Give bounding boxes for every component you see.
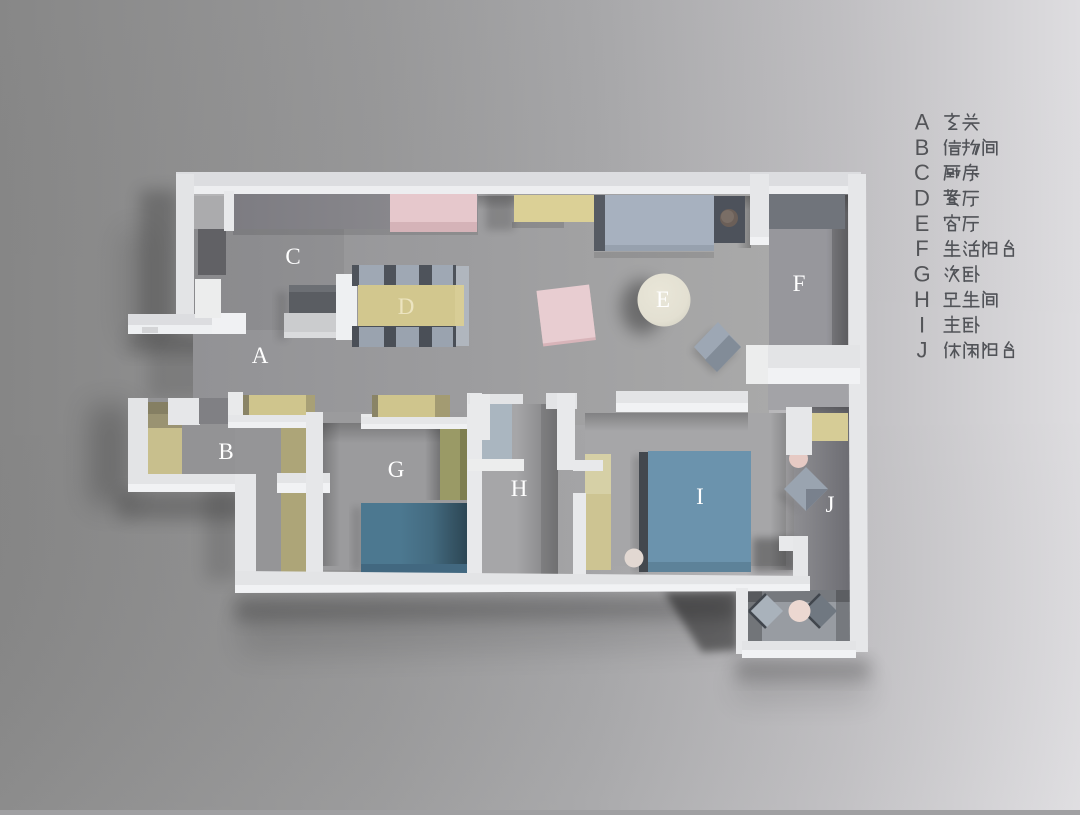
svg-text:J: J [826, 492, 835, 517]
svg-text:G: G [913, 262, 930, 287]
svg-text:B: B [915, 135, 930, 160]
svg-text:J: J [917, 338, 928, 363]
svg-text:E: E [656, 287, 670, 312]
svg-text:I: I [696, 484, 704, 509]
svg-text:G: G [388, 457, 405, 482]
svg-text:F: F [915, 236, 928, 261]
svg-text:I: I [919, 312, 925, 337]
svg-text:C: C [285, 244, 300, 269]
svg-text:A: A [915, 110, 930, 135]
svg-text:F: F [793, 271, 806, 296]
svg-text:E: E [915, 211, 930, 236]
svg-text:H: H [511, 476, 528, 501]
svg-text:D: D [914, 186, 930, 211]
svg-text:B: B [218, 439, 233, 464]
svg-text:C: C [914, 160, 930, 185]
svg-text:H: H [914, 287, 930, 312]
svg-text:A: A [252, 343, 269, 368]
svg-text:D: D [398, 294, 415, 319]
